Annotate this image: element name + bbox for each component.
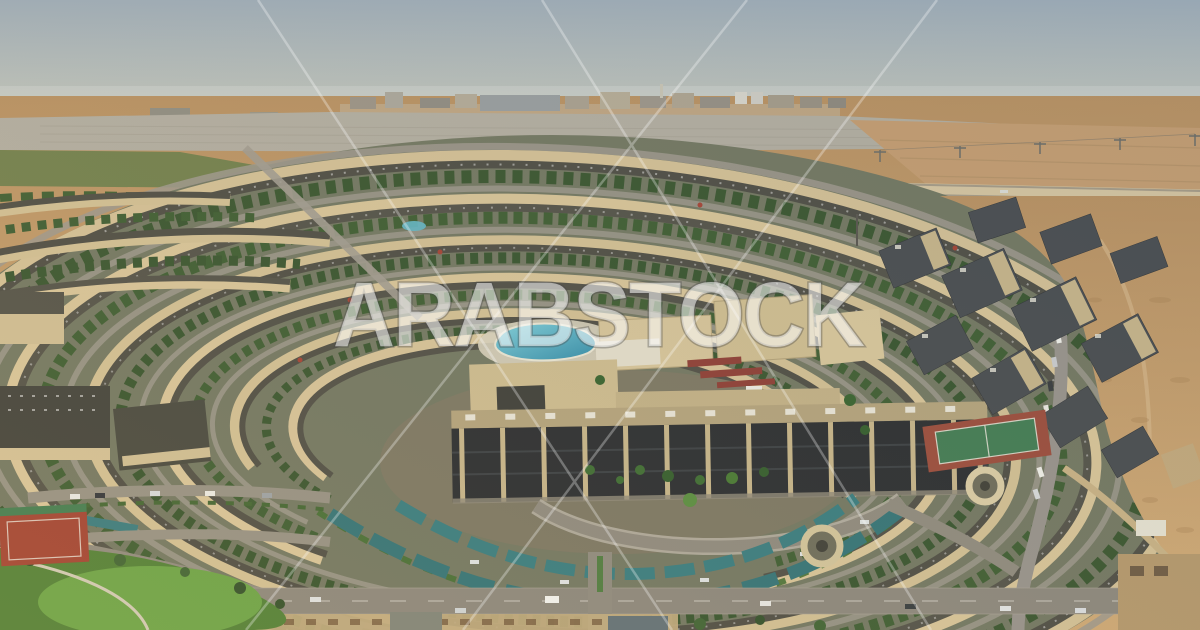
watermark-brand-text: ARABSTOCK bbox=[333, 264, 864, 366]
aerial-photo-stage: ARABSTOCK bbox=[0, 0, 1200, 630]
aerial-photo: ARABSTOCK bbox=[0, 0, 1200, 630]
